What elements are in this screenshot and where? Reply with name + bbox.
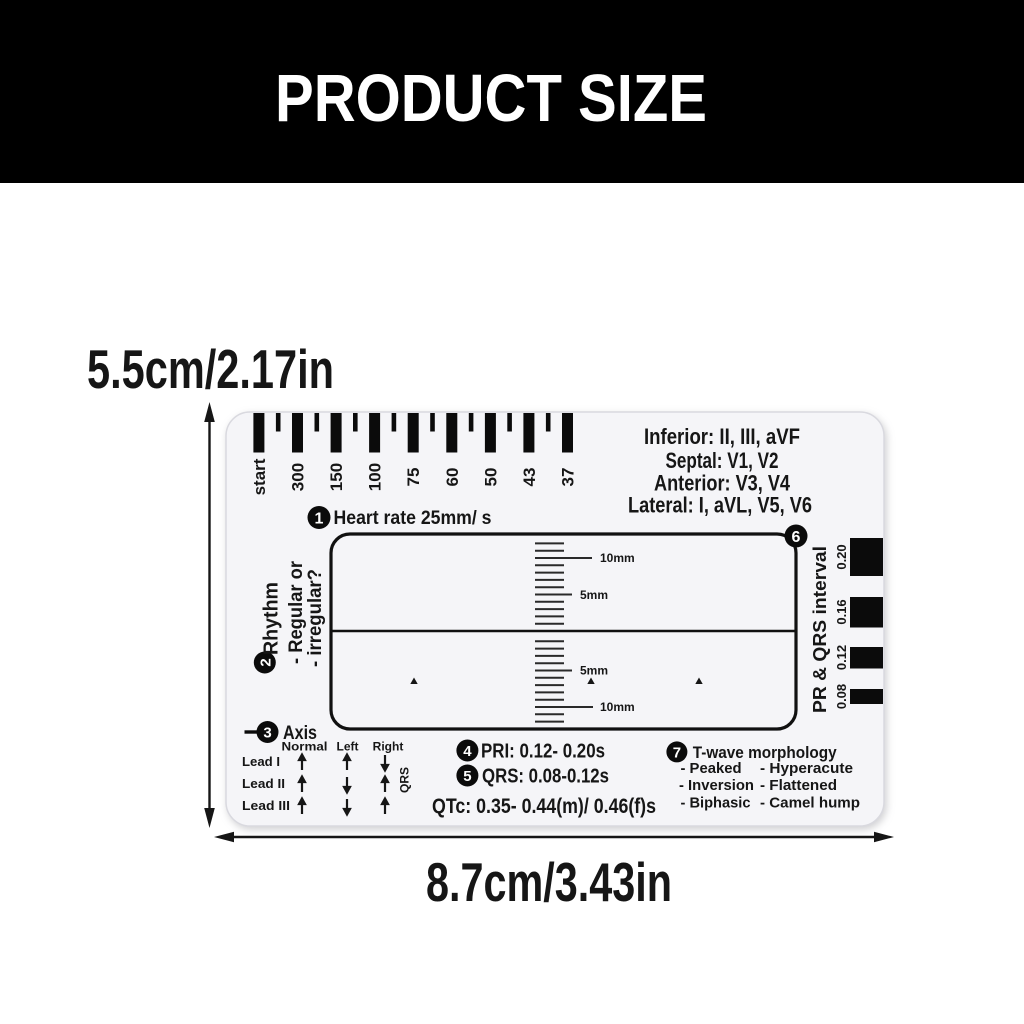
svg-text:Heart rate 25mm/ s: Heart rate 25mm/ s <box>334 508 492 529</box>
svg-text:1: 1 <box>315 511 324 528</box>
svg-text:- Biphasic: - Biphasic <box>681 795 751 812</box>
svg-text:PRODUCT SIZE: PRODUCT SIZE <box>275 61 707 136</box>
svg-text:Lead I: Lead I <box>242 754 280 769</box>
svg-text:5: 5 <box>463 768 471 785</box>
svg-text:8.7cm/3.43in: 8.7cm/3.43in <box>426 851 672 913</box>
svg-text:Normal: Normal <box>282 740 328 754</box>
svg-text:0.20: 0.20 <box>834 544 849 569</box>
svg-text:150: 150 <box>327 463 346 491</box>
svg-text:Lateral: I, aVL, V5, V6: Lateral: I, aVL, V5, V6 <box>628 493 812 518</box>
svg-text:0.08: 0.08 <box>834 684 849 709</box>
svg-text:0.16: 0.16 <box>834 599 849 624</box>
svg-text:PR & QRS interval: PR & QRS interval <box>810 546 830 713</box>
svg-text:- irregular?: - irregular? <box>305 569 326 667</box>
svg-text:- Flattened: - Flattened <box>760 777 837 794</box>
svg-text:75: 75 <box>404 468 423 487</box>
svg-text:50: 50 <box>481 468 500 487</box>
svg-text:5.5cm/2.17in: 5.5cm/2.17in <box>87 338 334 400</box>
svg-text:60: 60 <box>443 468 462 487</box>
svg-text:10mm: 10mm <box>600 700 635 714</box>
svg-text:- Camel hump: - Camel hump <box>760 795 860 812</box>
svg-text:- Peaked: - Peaked <box>681 760 742 777</box>
svg-text:2: 2 <box>258 658 275 666</box>
svg-text:37: 37 <box>559 468 578 487</box>
svg-text:Lead III: Lead III <box>242 798 290 813</box>
svg-text:43: 43 <box>520 468 539 487</box>
svg-text:6: 6 <box>792 529 801 546</box>
svg-text:Septal: V1, V2: Septal: V1, V2 <box>666 448 779 473</box>
svg-text:QRS: QRS <box>398 767 412 793</box>
svg-text:QTc: 0.35- 0.44(m)/ 0.46(f)s: QTc: 0.35- 0.44(m)/ 0.46(f)s <box>432 795 656 818</box>
svg-text:7: 7 <box>673 744 681 761</box>
svg-text:300: 300 <box>289 463 308 491</box>
svg-text:Inferior: II, III, aVF: Inferior: II, III, aVF <box>644 424 800 449</box>
svg-text:0.12: 0.12 <box>834 645 849 670</box>
svg-text:PRI: 0.12- 0.20s: PRI: 0.12- 0.20s <box>481 741 605 763</box>
svg-text:Lead II: Lead II <box>242 776 285 791</box>
svg-text:- Inversion: - Inversion <box>679 777 754 794</box>
svg-text:4: 4 <box>463 743 472 760</box>
svg-text:- Hyperacute: - Hyperacute <box>760 760 853 777</box>
svg-text:10mm: 10mm <box>600 551 635 565</box>
svg-text:Right: Right <box>373 740 404 754</box>
svg-text:3: 3 <box>263 725 271 742</box>
svg-text:Left: Left <box>337 740 359 754</box>
svg-text:QRS: 0.08-0.12s: QRS: 0.08-0.12s <box>482 766 609 788</box>
svg-text:Rhythm: Rhythm <box>261 582 283 655</box>
svg-text:start: start <box>250 458 269 495</box>
svg-text:5mm: 5mm <box>580 664 608 678</box>
svg-text:5mm: 5mm <box>580 588 608 602</box>
svg-text:- Regular or: - Regular or <box>286 560 307 664</box>
svg-text:100: 100 <box>366 463 385 491</box>
